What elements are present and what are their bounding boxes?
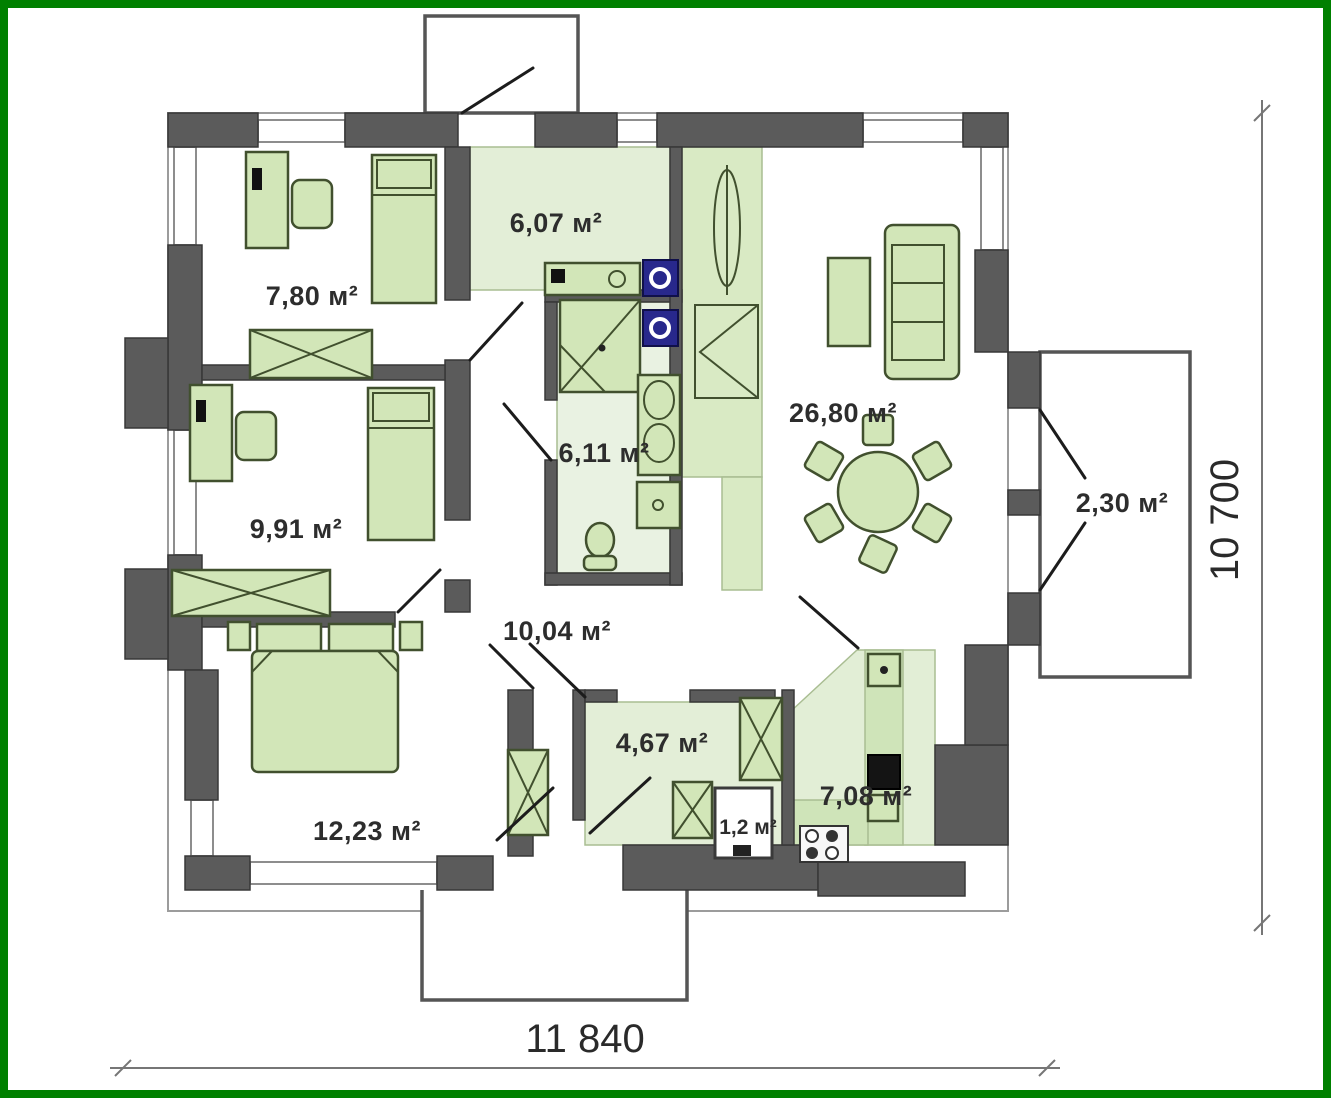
wall-segment <box>445 147 470 300</box>
office-chair-icon <box>292 180 332 228</box>
burner-icon <box>806 830 818 842</box>
burner-icon <box>806 847 818 859</box>
room-label-bedroom1: 7,80 м² <box>266 281 359 311</box>
wall-segment <box>573 690 585 820</box>
pillow-icon <box>329 624 393 651</box>
wall-segment <box>445 580 470 612</box>
boiler-cabinet-icon <box>637 482 680 528</box>
nightstand-icon <box>400 622 422 650</box>
armchair-icon <box>828 258 870 346</box>
wall-segment <box>545 460 557 585</box>
wall-segment <box>975 250 1008 352</box>
wall-segment <box>965 645 1008 745</box>
room-label-bedroom2: 9,91 м² <box>250 514 343 544</box>
monitor-icon <box>196 400 206 422</box>
entrance-porch <box>425 16 578 113</box>
window <box>174 147 196 245</box>
window <box>617 120 657 142</box>
toilet-icon <box>586 523 614 557</box>
sofa-icon <box>885 225 959 379</box>
window <box>250 862 437 884</box>
pillow-icon <box>257 624 321 651</box>
room-label-vestibule: 4,67 м² <box>616 728 709 758</box>
wall-pier <box>125 338 168 428</box>
single-bed-icon <box>368 388 434 540</box>
wall-segment <box>963 113 1008 147</box>
room-label-kitchen: 7,08 м² <box>820 781 913 811</box>
wall-segment <box>437 856 493 890</box>
wall-segment <box>545 302 557 400</box>
wall-pier <box>125 569 168 659</box>
wall-segment <box>818 862 965 896</box>
burner-icon <box>826 830 838 842</box>
wall-pier <box>1008 490 1040 515</box>
room-label-hallway: 10,04 м² <box>503 616 611 646</box>
window <box>981 147 1003 250</box>
monitor-icon <box>252 168 262 190</box>
desk-icon <box>246 152 288 248</box>
wall-segment <box>782 690 794 845</box>
wall-segment <box>185 856 250 890</box>
built-in-cabinet-strip-lower <box>722 477 762 590</box>
sink-drain <box>880 666 888 674</box>
window <box>863 120 963 142</box>
room-label-living: 26,80 м² <box>789 398 897 428</box>
overall-width-dimension: 11 840 <box>525 1017 644 1061</box>
toilet-tank <box>584 556 616 570</box>
shower-drain <box>599 345 606 352</box>
window <box>191 800 213 856</box>
office-chair-icon <box>236 412 276 460</box>
dining-table-icon <box>838 452 918 532</box>
wall-pier <box>1008 352 1040 408</box>
room-label-terrace: 2,30 м² <box>1076 488 1169 518</box>
wall-segment <box>545 573 682 585</box>
wc-fixture-icon <box>733 845 751 856</box>
wall-segment <box>185 670 218 800</box>
single-bed-icon <box>372 155 436 303</box>
wall-segment <box>168 113 258 147</box>
rear-porch <box>422 890 687 1000</box>
burner-icon <box>826 847 838 859</box>
appliance-icon <box>551 269 565 283</box>
washing-machine-icon <box>643 310 678 346</box>
double-bed-icon <box>252 651 398 772</box>
overall-height-dimension: 10 700 <box>1203 459 1247 581</box>
window <box>258 120 345 142</box>
wall-pier <box>1008 593 1040 645</box>
wall-segment <box>935 745 1008 845</box>
wall-segment <box>445 360 470 520</box>
wall-segment <box>535 113 617 147</box>
desk-icon <box>190 385 232 481</box>
wall-segment <box>585 690 617 702</box>
room-label-bedroom3: 12,23 м² <box>313 816 421 846</box>
room-label-hall: 6,07 м² <box>510 208 603 238</box>
floor-plan-image: 6,07 м² 7,80 м² 9,91 м² 6,11 м² 26,80 м²… <box>0 0 1331 1098</box>
room-label-wc: 1,2 м² <box>719 816 777 839</box>
wall-segment <box>345 113 458 147</box>
wall-segment <box>657 113 863 147</box>
room-label-bathroom: 6,11 м² <box>558 438 649 468</box>
nightstand-icon <box>228 622 250 650</box>
washing-machine-icon <box>643 260 678 296</box>
